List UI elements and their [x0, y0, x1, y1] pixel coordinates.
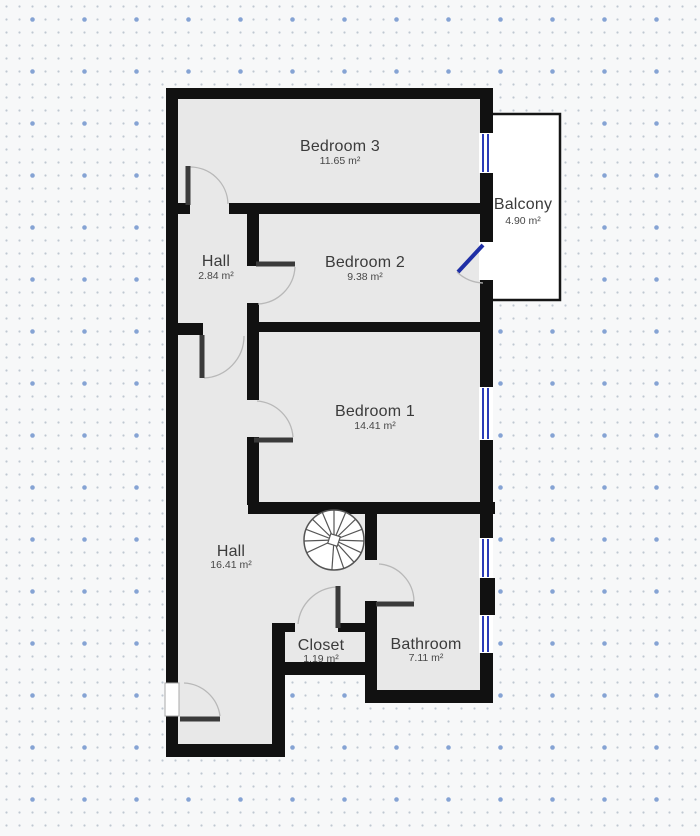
- wall-left-upper[interactable]: [166, 88, 178, 683]
- wall-right-4[interactable]: [480, 440, 493, 538]
- label-closet-name: Closet: [298, 637, 345, 654]
- label-bedroom1-name: Bedroom 1: [335, 403, 415, 420]
- label-hall-upper-name: Hall: [202, 253, 230, 270]
- spiral-staircase[interactable]: [304, 510, 364, 570]
- wall-right-6[interactable]: [480, 653, 493, 703]
- label-hall-lower-name: Hall: [217, 543, 245, 560]
- label-balcony-area: 4.90 m²: [505, 215, 541, 227]
- wall-bedroom3-bottom[interactable]: [229, 203, 493, 214]
- wall-closet-top-left[interactable]: [272, 623, 295, 632]
- window-bathroom-2[interactable]: [479, 615, 493, 653]
- label-bedroom2-area: 9.38 m²: [347, 271, 383, 283]
- label-bathroom-name: Bathroom: [391, 636, 462, 653]
- wall-bottom-hall[interactable]: [166, 744, 285, 757]
- wall-hall-divider[interactable]: [166, 323, 203, 335]
- entry-door-opening[interactable]: [165, 683, 179, 716]
- wall-bathroom-bottom[interactable]: [365, 690, 493, 703]
- window-bedroom1[interactable]: [479, 387, 493, 440]
- label-bedroom3-name: Bedroom 3: [300, 138, 380, 155]
- wall-bedroom2-left-upper[interactable]: [247, 214, 259, 266]
- wall-bedroom2-left-lower[interactable]: [247, 303, 259, 322]
- window-bedroom3[interactable]: [479, 133, 493, 173]
- wall-bedroom1-bottom[interactable]: [248, 502, 495, 514]
- label-bathroom-area: 7.11 m²: [409, 652, 444, 664]
- label-bedroom2-name: Bedroom 2: [325, 254, 405, 271]
- label-bedroom3-area: 11.65 m²: [320, 155, 361, 167]
- wall-bathroom-left-lower[interactable]: [365, 601, 377, 690]
- label-bedroom1-area: 14.41 m²: [354, 420, 396, 432]
- label-hall-upper-area: 2.84 m²: [198, 270, 234, 282]
- wall-top[interactable]: [166, 88, 493, 99]
- wall-bedroom2-bottom[interactable]: [247, 322, 493, 332]
- wall-right-2[interactable]: [480, 173, 493, 242]
- wall-hall-right[interactable]: [272, 623, 285, 757]
- label-balcony-name: Balcony: [494, 196, 552, 213]
- floorplan-canvas: Bedroom 3 11.65 m² Balcony 4.90 m² Hall …: [0, 0, 700, 836]
- label-closet-area: 1.19 m²: [303, 653, 339, 665]
- wall-bedroom1-left-upper[interactable]: [247, 322, 259, 400]
- wall-right-3[interactable]: [480, 280, 493, 387]
- wall-right-1[interactable]: [480, 88, 493, 133]
- stair-center-post: [328, 534, 341, 547]
- wall-bedroom1-left-lower[interactable]: [247, 437, 259, 505]
- floorplan-drawing: Bedroom 3 11.65 m² Balcony 4.90 m² Hall …: [0, 0, 700, 836]
- wall-right-5[interactable]: [480, 578, 495, 615]
- window-bathroom-1[interactable]: [479, 538, 493, 578]
- label-hall-lower-area: 16.41 m²: [210, 559, 252, 571]
